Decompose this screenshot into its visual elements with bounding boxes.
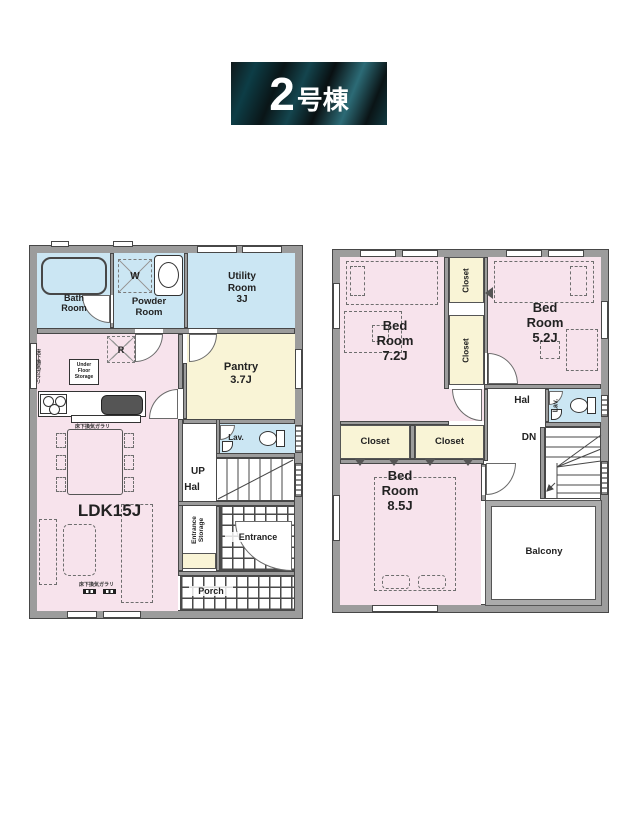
window [333,283,340,329]
window [103,611,141,618]
label-closet-v1: Closet [462,268,471,292]
label-closet-b: Closet [435,437,464,448]
window [67,611,97,618]
wall [444,257,449,389]
stairs-1f [216,458,295,501]
wall [216,506,220,571]
window [402,250,438,257]
window [601,395,608,417]
chair [124,455,134,470]
wall [184,253,188,328]
label-closet-v2: Closet [462,338,471,362]
building-badge: 2 号棟 [231,62,387,125]
label-bed2: Bed Room 5.2J [505,301,585,346]
toilet-tank-icon [276,430,285,447]
label-dn: DN [516,432,542,444]
wall [183,419,295,424]
chair [124,477,134,492]
label-balcony: Balcony [506,547,582,558]
label-lav-1f: Lav. [223,433,249,442]
wall [484,384,601,389]
under-floor-storage-box: Under Floor Storage [69,359,99,385]
stove-burner-icon [49,404,60,415]
counter-ledge [71,415,141,423]
window [548,250,584,257]
sofa [39,519,57,585]
window [360,250,396,257]
label-ldk: LDK15J [52,501,167,521]
door-opening [110,295,114,323]
label-utility: Utility Room 3J [203,271,281,306]
window [242,246,282,253]
building-suffix: 号棟 [297,87,349,113]
toilet-icon [259,430,285,446]
closet-door-mark [485,287,493,299]
wall [178,571,295,576]
chair [124,433,134,448]
label-powder: Powder Room [117,297,181,319]
toilet-tank-icon [587,397,596,414]
stairs-2f [545,427,601,499]
label-hal-2f: Hal [505,395,539,407]
vent-note: 床下換気ガラリ [75,423,110,430]
toilet-icon [570,397,596,413]
label-hal-1f: Hal [179,482,205,494]
floor-vent [83,589,96,594]
toilet-bowl-icon [259,431,277,446]
pillow [570,266,587,296]
closet-door-mark [388,458,400,466]
wall [183,363,187,419]
wall [340,421,449,425]
floor1-plan: R Under Floor Storage W Bath Room [30,246,302,618]
wall [410,425,415,459]
window [197,246,237,253]
window [506,250,542,257]
label-entrance: Entrance [225,532,291,542]
building-number: 2 [269,71,295,117]
label-pantry: Pantry 3.7J [197,361,285,386]
chair [56,477,66,492]
window [295,349,302,389]
floor-vent [103,589,116,594]
refrigerator-icon: R [107,336,135,363]
room-closet-v1: Closet [449,257,484,303]
window [295,425,302,453]
pillow [350,266,365,296]
powder-sink-icon [158,262,179,288]
chair [56,433,66,448]
room-closet-a: Closet [340,425,410,459]
window [295,463,302,497]
label-porch: Porch [189,586,233,596]
room-closet-b: Closet [415,425,484,459]
label-up: UP [187,466,209,478]
shoe-cabinet [180,553,216,569]
label-lav-2f-wrap: Lav. [549,389,563,422]
wall [484,389,488,461]
roof-vent [51,241,69,247]
bathtub-icon [41,257,107,295]
label-entrance-storage-wrap: Entrance Storage [180,506,216,553]
closet-door-mark [462,458,474,466]
toilet-bowl-icon [570,398,588,413]
kitchen-sink-icon [101,395,143,415]
washer-label: W [130,271,139,282]
label-closet-a: Closet [360,437,389,448]
label-lav-2f: Lav. [553,399,560,413]
window [372,605,438,612]
dining-table [67,429,123,495]
window [601,301,608,339]
washer-icon: W [118,259,152,293]
closet-door-mark [424,458,436,466]
window [333,495,340,541]
refrigerator-label: R [118,345,125,355]
floor2-plan: Closet Closet Closet Closet [333,250,608,612]
label-bed1: Bed Room 7.2J [355,319,435,364]
pillow [382,575,410,589]
label-entrance-storage: Entrance Storage [191,516,205,544]
door-arc [486,463,516,495]
label-bed3: Bed Room 8.5J [360,469,440,514]
vent-note: 床下換気ガラリ [79,581,114,588]
wall [37,328,295,334]
roof-vent [113,241,133,247]
under-floor-storage-label: Under Floor Storage [75,363,94,380]
room-closet-v2: Closet [449,315,484,385]
closet-door-mark [354,458,366,466]
living-table [63,524,96,576]
pillow [418,575,446,589]
label-bath: Bath Room [45,293,103,314]
vent-note-vertical: 床下換気ガラリ [35,349,42,384]
chair [56,455,66,470]
window [601,461,608,495]
